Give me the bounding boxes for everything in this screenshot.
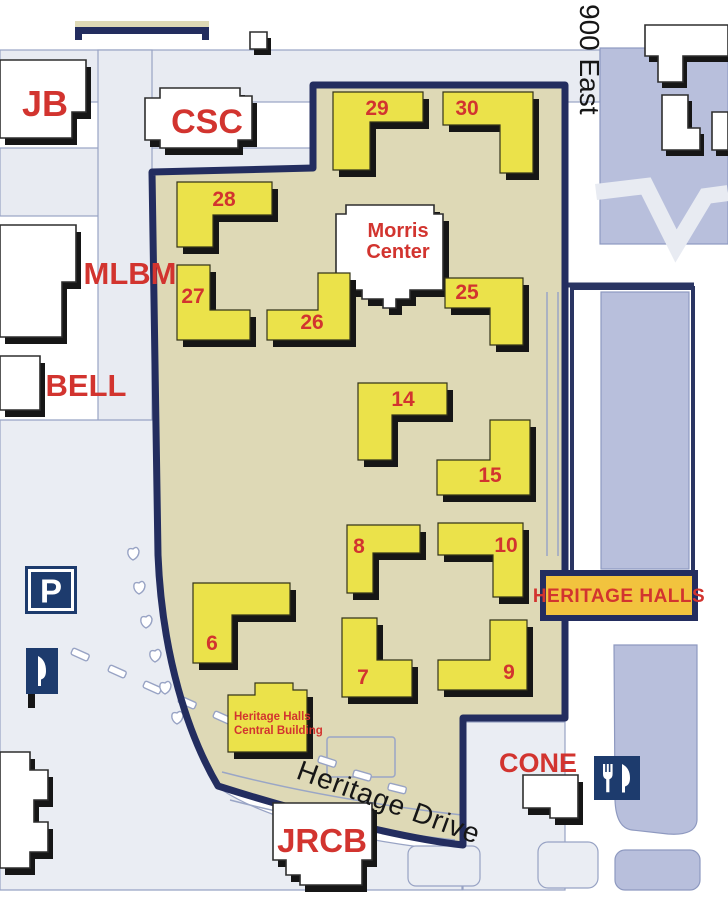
hall-number: 9 — [503, 661, 515, 684]
parking-sign: P — [25, 566, 77, 614]
small-building — [250, 32, 267, 49]
mlbm-label: MLBM — [84, 256, 177, 291]
jrcb-label: JRCB — [277, 822, 367, 859]
hall-number: 15 — [478, 464, 502, 487]
heritage-halls-sign-label: HERITAGE HALLS — [533, 586, 705, 607]
bell-building — [0, 356, 40, 410]
east-street-blocks — [568, 48, 728, 890]
hall-number: 10 — [494, 534, 517, 557]
bell-label: BELL — [46, 368, 127, 403]
morris-center-label-2: Center — [366, 241, 430, 263]
jb-label: JB — [22, 83, 68, 124]
dining-icon — [594, 756, 640, 800]
hall-number: 25 — [455, 281, 479, 304]
north-boundary-fragment — [75, 21, 209, 40]
morris-center-label-1: Morris — [367, 220, 428, 242]
hall-number: 8 — [353, 535, 365, 558]
hall-number: 26 — [300, 311, 323, 334]
hall-number: 7 — [357, 666, 369, 689]
hall-number: 27 — [181, 285, 204, 308]
northeast-building-3 — [712, 112, 728, 150]
heritage-halls-sign: HERITAGE HALLS — [533, 573, 705, 618]
central-building-label-1: Heritage Halls — [234, 711, 311, 723]
campus-map: 29 30 28 27 26 25 14 15 8 10 6 7 9 Herit… — [0, 0, 728, 910]
hall-number: 28 — [212, 188, 236, 211]
cone-label: CONE — [499, 748, 577, 778]
hall-number: 14 — [391, 388, 415, 411]
central-building-label-2: Central Building — [234, 725, 323, 737]
csc-label: CSC — [171, 103, 243, 141]
parking-icon: P — [40, 573, 62, 610]
hall-number: 30 — [455, 97, 478, 120]
hall-number: 6 — [206, 632, 218, 655]
map-canvas: 29 30 28 27 26 25 14 15 8 10 6 7 9 Herit… — [0, 0, 728, 910]
hall-number: 29 — [365, 97, 388, 120]
street-900-east-label: 900 East — [574, 4, 605, 115]
